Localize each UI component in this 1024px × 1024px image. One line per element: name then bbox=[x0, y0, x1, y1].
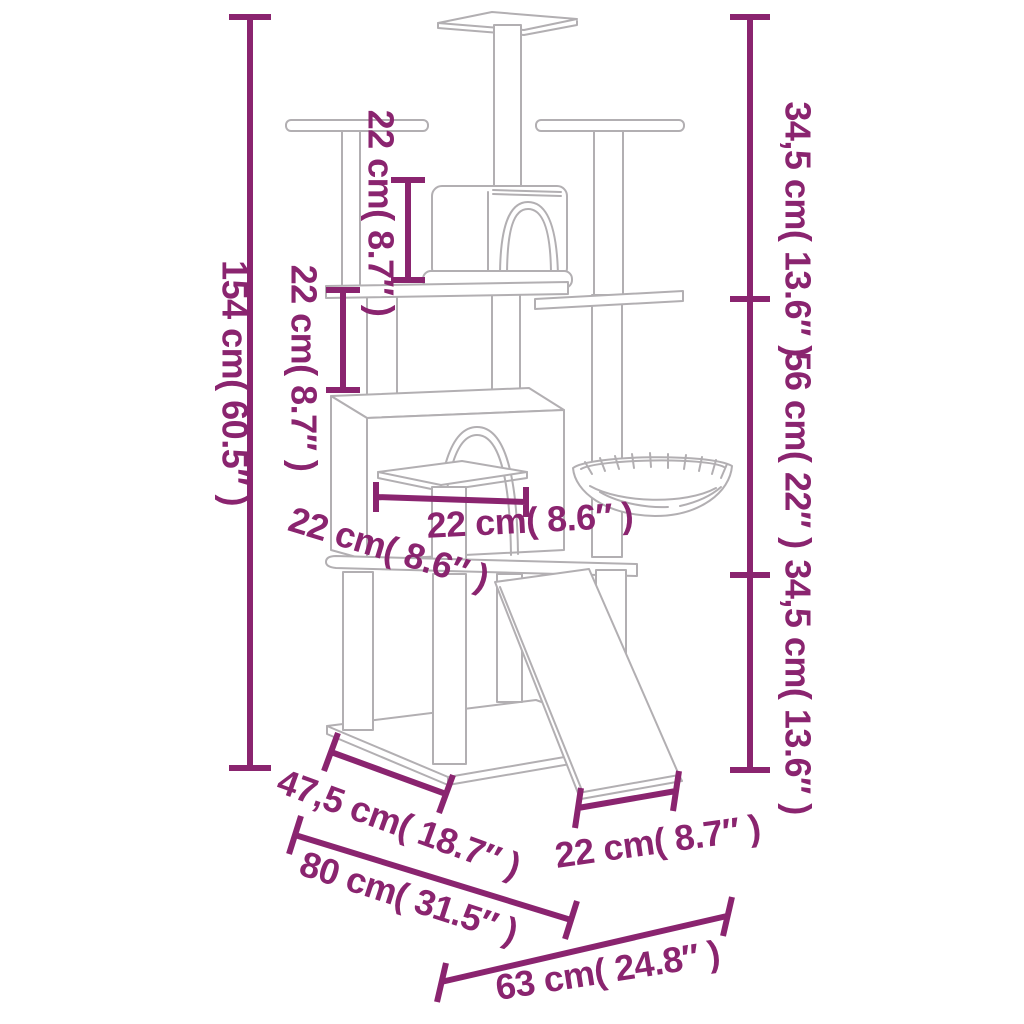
label-right-mid-segment: 56 cm( 22″ ) bbox=[777, 351, 818, 548]
label-mid-post-height: 22 cm( 8.7″ ) bbox=[283, 265, 324, 472]
upper-right-post bbox=[594, 127, 623, 299]
right-platform bbox=[536, 120, 684, 131]
mid-center-post bbox=[492, 293, 520, 393]
upper-left-post bbox=[342, 127, 360, 291]
label-right-top-segment: 34,5 cm( 13.6″ ) bbox=[777, 101, 818, 356]
cat-tree-dimension-diagram: 154 cm( 60.5″ ) 22 cm( 8.7″ ) 22 cm( 8.7… bbox=[0, 0, 1024, 1024]
label-total-height: 154 cm( 60.5″ ) bbox=[214, 260, 255, 506]
label-right-bottom-segment: 34,5 cm( 13.6″ ) bbox=[777, 559, 818, 814]
lower-post-1 bbox=[343, 572, 373, 730]
condo-house bbox=[423, 186, 572, 288]
diagram-canvas: 154 cm( 60.5″ ) 22 cm( 8.7″ ) 22 cm( 8.7… bbox=[0, 0, 1024, 1024]
left-platform bbox=[286, 120, 428, 131]
label-ramp-width: 22 cm( 8.7″ ) bbox=[552, 806, 763, 875]
cat-tree-drawing bbox=[286, 12, 732, 799]
top-post bbox=[494, 25, 521, 188]
dim-line-right-segments bbox=[730, 17, 770, 770]
dim-line-mid-post-height bbox=[326, 290, 360, 390]
label-condo-height: 22 cm( 8.7″ ) bbox=[360, 110, 401, 317]
lower-post-2 bbox=[433, 574, 466, 764]
